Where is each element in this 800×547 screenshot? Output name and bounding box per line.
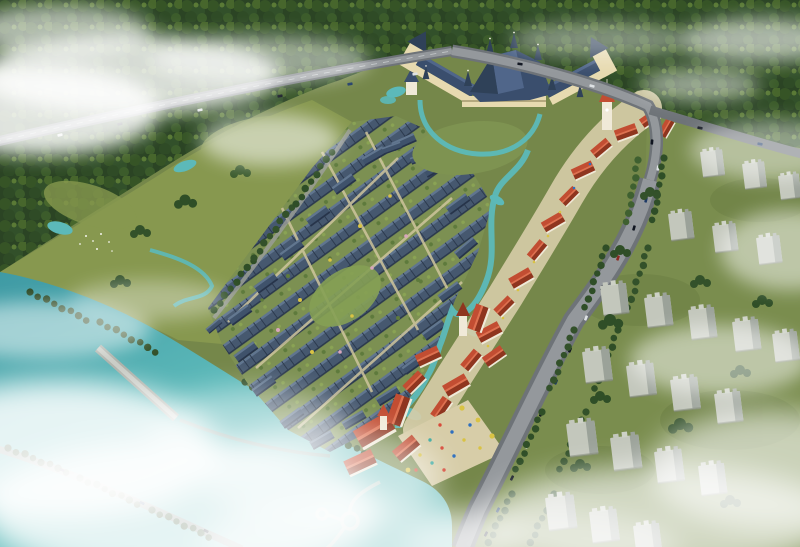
context-building xyxy=(581,345,613,385)
aerial-rendering: Aerial bird's-eye rendering of a Europea… xyxy=(0,0,800,547)
context-building xyxy=(644,291,674,329)
scene-svg xyxy=(0,0,800,547)
context-building xyxy=(600,279,630,317)
context-building xyxy=(668,208,695,242)
context-building xyxy=(565,416,598,458)
